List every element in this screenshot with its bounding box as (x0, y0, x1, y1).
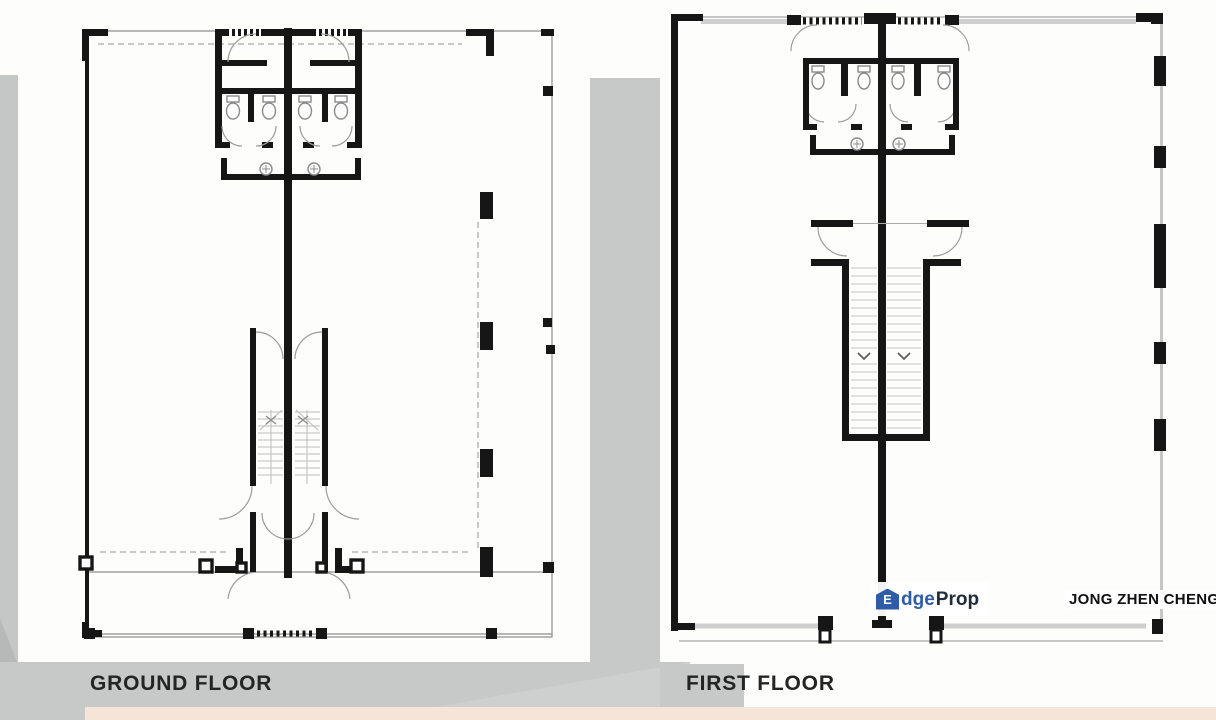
edgeprop-watermark: E dge Prop (871, 582, 988, 616)
edgeprop-house-icon: E (876, 589, 899, 610)
agent-name: JONG ZHEN CHENG (1066, 590, 1216, 609)
first-outer-thin-lines (679, 17, 1163, 641)
ground-walls-and-columns (82, 29, 555, 638)
ground-party-wall (284, 28, 292, 578)
ground-entrance (80, 486, 363, 599)
first-bottom-stub-columns (820, 630, 941, 642)
edgeprop-brand-text-blue: dge (901, 590, 935, 609)
bottom-accent-strip (85, 707, 1216, 720)
first-party-wall (878, 22, 886, 622)
edgeprop-brand-text-dark: Prop (936, 590, 979, 609)
floor-plan-image: E dge Prop JONG ZHEN CHENG GROUND FLOOR … (0, 0, 1216, 720)
first-landing-wall (811, 220, 969, 256)
floor-plans-drawing (0, 0, 1216, 720)
first-floor-label: FIRST FLOOR (686, 672, 835, 696)
first-floor-plan (671, 13, 1166, 642)
first-landing-door-arcs (818, 227, 962, 256)
ground-floor-plan (80, 28, 555, 639)
ground-floor-label: GROUND FLOOR (90, 672, 272, 696)
